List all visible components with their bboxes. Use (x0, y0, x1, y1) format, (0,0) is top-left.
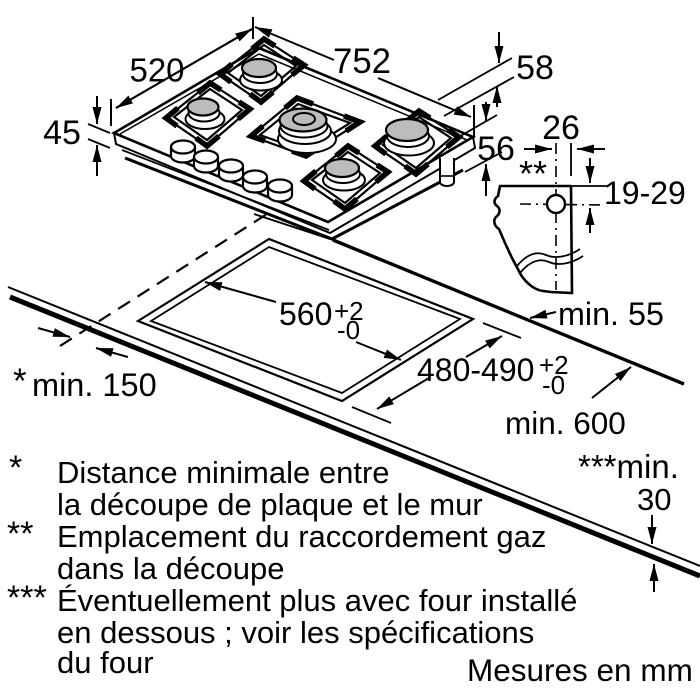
svg-text:56: 56 (477, 130, 515, 168)
svg-text:30: 30 (637, 482, 671, 517)
svg-text:45: 45 (43, 114, 81, 152)
svg-text:dans la découpe: dans la découpe (57, 551, 285, 586)
svg-text:*: * (9, 449, 22, 487)
svg-text:19-29: 19-29 (604, 175, 686, 211)
svg-text:Mesures en mm: Mesures en mm (467, 652, 693, 688)
svg-text:*: * (13, 362, 27, 401)
svg-text:520: 520 (129, 52, 184, 89)
svg-text:***: *** (7, 579, 47, 617)
svg-text:-0: -0 (337, 315, 360, 345)
svg-text:Distance minimale entre: Distance minimale entre (57, 455, 390, 490)
svg-text:Emplacement du raccordement ga: Emplacement du raccordement gaz (57, 519, 546, 554)
svg-text:min. 600: min. 600 (505, 405, 626, 441)
svg-text:***min.: ***min. (578, 448, 679, 485)
svg-text:752: 752 (333, 42, 391, 81)
svg-text:480-490: 480-490 (417, 352, 534, 388)
svg-text:du four: du four (57, 645, 154, 680)
svg-text:-0: -0 (542, 370, 565, 400)
svg-text:**: ** (7, 515, 33, 553)
svg-text:560: 560 (279, 296, 332, 332)
svg-text:**: ** (519, 153, 547, 194)
svg-text:min. 55: min. 55 (558, 296, 664, 332)
svg-text:min. 150: min. 150 (32, 367, 157, 403)
svg-text:la découpe de plaque et le mur: la découpe de plaque et le mur (57, 487, 483, 522)
svg-text:58: 58 (516, 49, 554, 87)
svg-text:26: 26 (542, 109, 580, 147)
svg-text:Éventuellement plus avec four: Éventuellement plus avec four installé (57, 583, 577, 618)
